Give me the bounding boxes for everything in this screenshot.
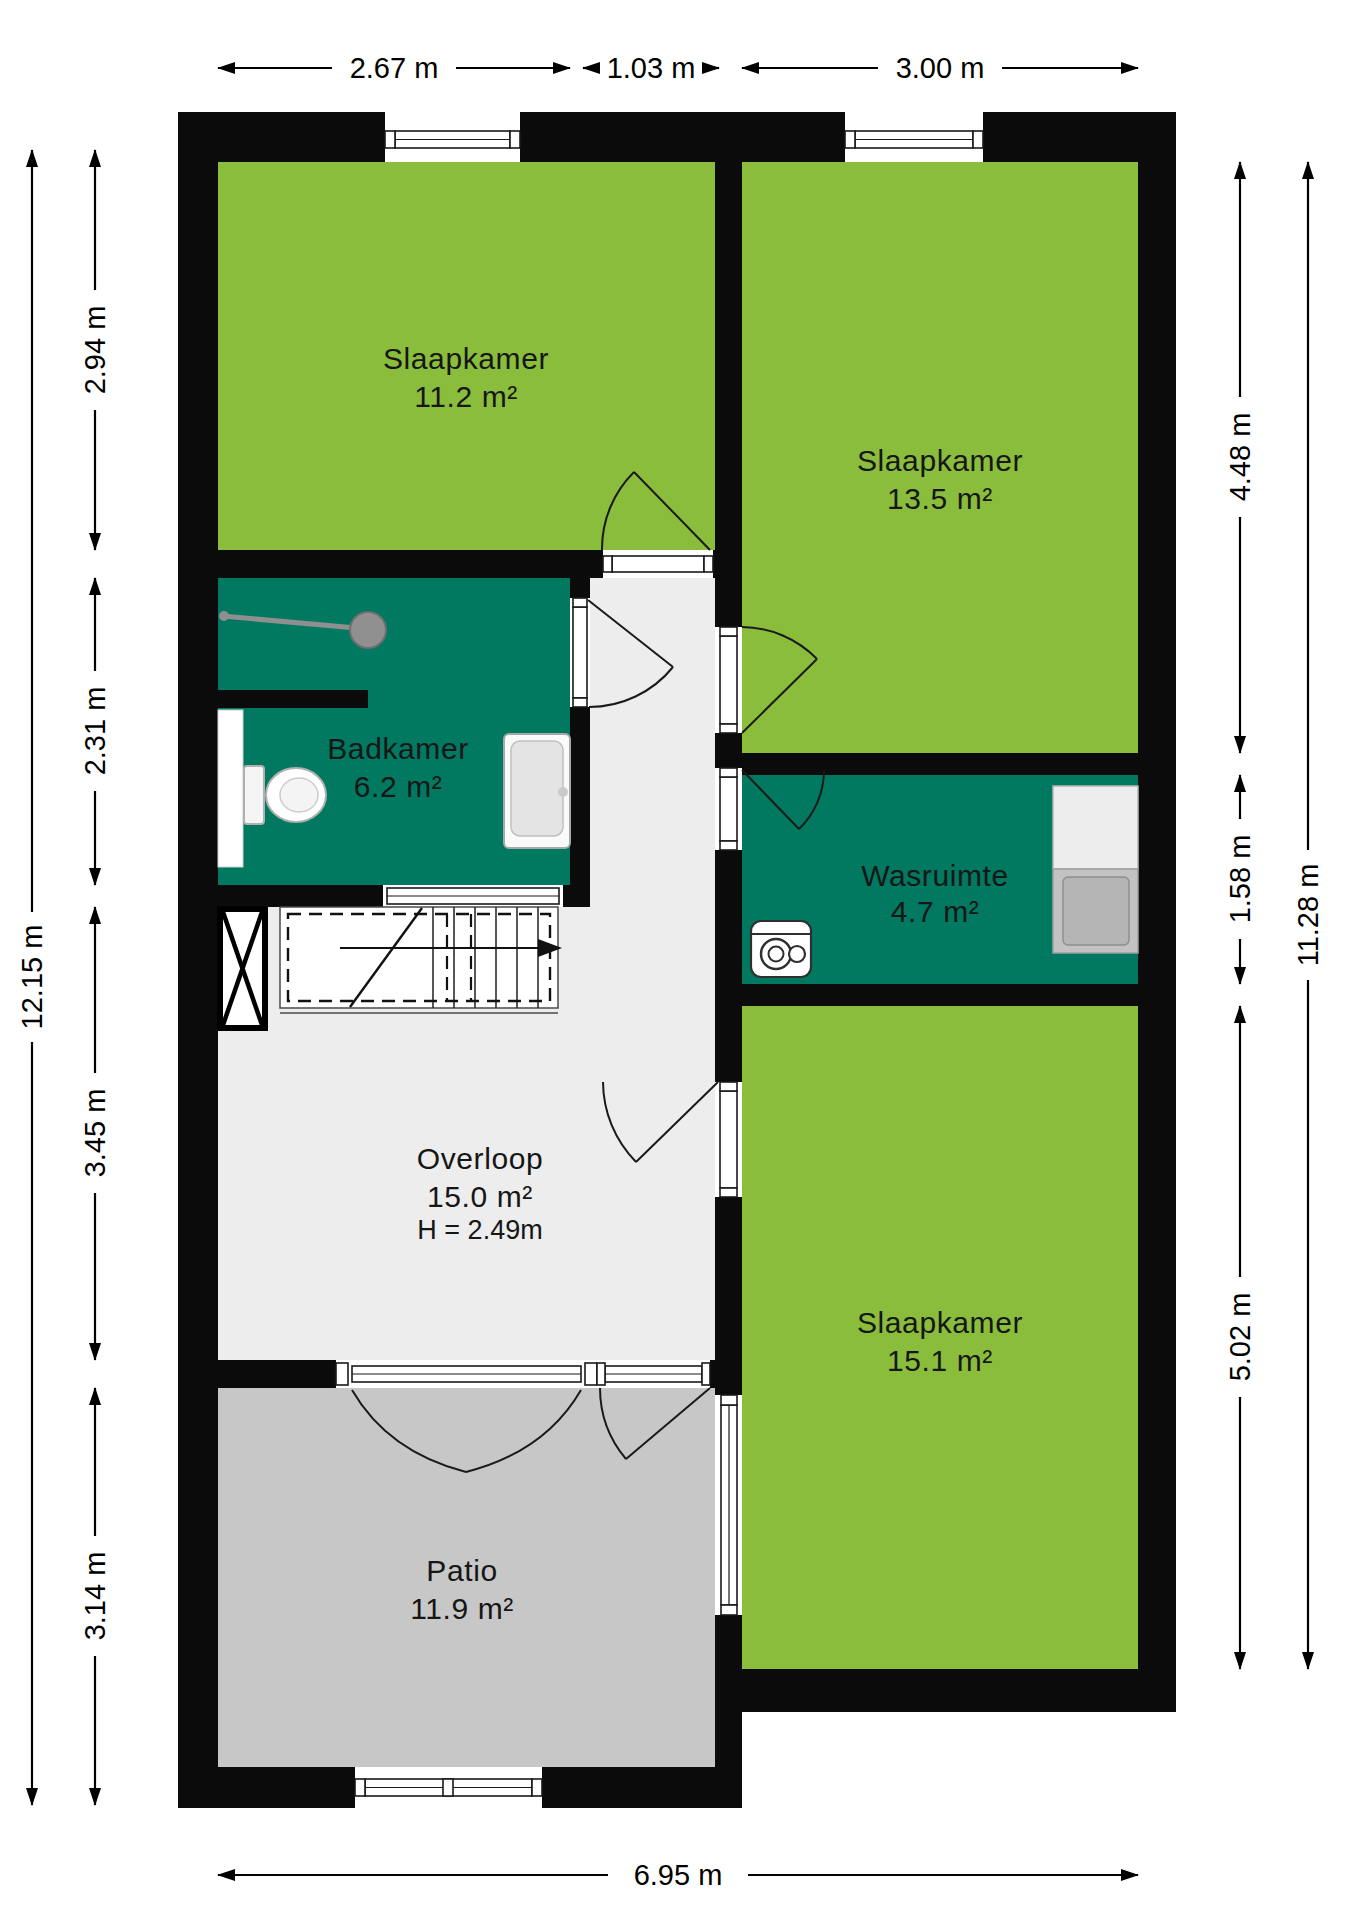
wall-bedroom2-wasruimte — [742, 753, 1138, 775]
wall-exterior-bottom-bedroom — [715, 1669, 1176, 1712]
dim-label: 2.94 m — [79, 306, 111, 395]
dim-label: 3.45 m — [79, 1089, 111, 1178]
floorplan-page: Slaapkamer 11.2 m² Slaapkamer 13.5 m² Ba… — [0, 0, 1358, 1920]
room-label: Slaapkamer — [857, 444, 1023, 477]
room-area: 11.2 m² — [414, 380, 518, 413]
dryer-icon — [1053, 786, 1138, 869]
dim-label: 2.31 m — [79, 687, 111, 776]
dimension-top: 2.67 m 1.03 m 3.00 m — [218, 52, 1138, 84]
wall-bedroom1-south-end — [713, 550, 742, 578]
dim-label: 3.14 m — [79, 1552, 111, 1641]
dimension-right-segments: 4.48 m 1.58 m 5.02 m — [1224, 162, 1256, 1669]
wall-center-5 — [715, 1615, 742, 1808]
room-ceiling-height: H = 2.49m — [417, 1215, 542, 1245]
wall-exterior-left — [178, 112, 218, 1808]
room-label: Wasruimte — [861, 859, 1009, 892]
room-area: 4.7 m² — [891, 895, 980, 928]
wall-bedroom1-south — [218, 550, 603, 578]
dim-label: 6.95 m — [634, 1859, 723, 1891]
door-threshold-bedroom3 — [715, 1082, 742, 1197]
wall-badkamer-east-top — [570, 578, 590, 598]
dim-label: 1.58 m — [1224, 835, 1256, 924]
wall-badkamer-partition — [218, 690, 368, 708]
door-threshold-badkamer — [570, 598, 590, 707]
door-threshold-bedroom1 — [603, 550, 713, 578]
room-area: 11.9 m² — [410, 1592, 514, 1625]
dim-label: 1.03 m — [607, 52, 696, 84]
wall-exterior-right — [1138, 112, 1176, 1712]
void-cross-icon — [220, 909, 265, 1028]
wall-center-3 — [715, 850, 742, 1082]
room-label: Slaapkamer — [383, 342, 549, 375]
dimension-left-segments: 2.94 m 2.31 m 3.45 m 3.14 m — [79, 150, 111, 1805]
room-area: 15.1 m² — [887, 1344, 993, 1377]
window-patio-bottom — [355, 1767, 542, 1808]
dim-label: 4.48 m — [1224, 413, 1256, 502]
dim-label: 5.02 m — [1224, 1293, 1256, 1382]
door-threshold-patio-french — [336, 1360, 597, 1388]
dim-label: 3.00 m — [896, 52, 985, 84]
wall-overloop-patio-end — [710, 1360, 742, 1388]
wall-overloop-patio — [218, 1360, 336, 1388]
room-label: Slaapkamer — [857, 1306, 1023, 1339]
window-bedroom1-top — [385, 112, 520, 162]
room-label: Badkamer — [327, 732, 469, 765]
boiler-icon — [751, 921, 811, 977]
room-area: 15.0 m² — [427, 1180, 533, 1213]
wall-wasruimte-bedroom3 — [742, 984, 1138, 1006]
window-bedroom3-patio — [715, 1395, 742, 1615]
toilet-icon — [244, 766, 326, 824]
door-threshold-patio-single — [597, 1360, 710, 1388]
window-bedroom2-top — [845, 112, 983, 162]
dimension-left-total: 12.15 m — [16, 150, 48, 1805]
badkamer-niche — [218, 710, 243, 867]
washing-machine-icon — [1053, 869, 1138, 953]
dim-label: 2.67 m — [350, 52, 439, 84]
floorplan-drawing: Slaapkamer 11.2 m² Slaapkamer 13.5 m² Ba… — [0, 0, 1358, 1920]
room-area: 6.2 m² — [354, 770, 443, 803]
dim-label: 12.15 m — [16, 925, 48, 1030]
wall-exterior-top — [178, 112, 1176, 162]
dimension-bottom: 6.95 m — [218, 1859, 1138, 1891]
room-label: Overloop — [417, 1142, 544, 1175]
dimension-right-total: 11.28 m — [1292, 162, 1324, 1669]
window-stair-rail — [383, 885, 563, 907]
wall-badkamer-east-bottom — [570, 707, 590, 890]
room-label: Patio — [426, 1554, 497, 1587]
bathtub-icon — [504, 734, 570, 848]
wall-center-2 — [715, 733, 742, 768]
room-area: 13.5 m² — [887, 482, 993, 515]
door-threshold-wasruimte — [715, 768, 742, 850]
dim-label: 11.28 m — [1292, 864, 1324, 967]
door-threshold-bedroom2 — [715, 627, 742, 733]
